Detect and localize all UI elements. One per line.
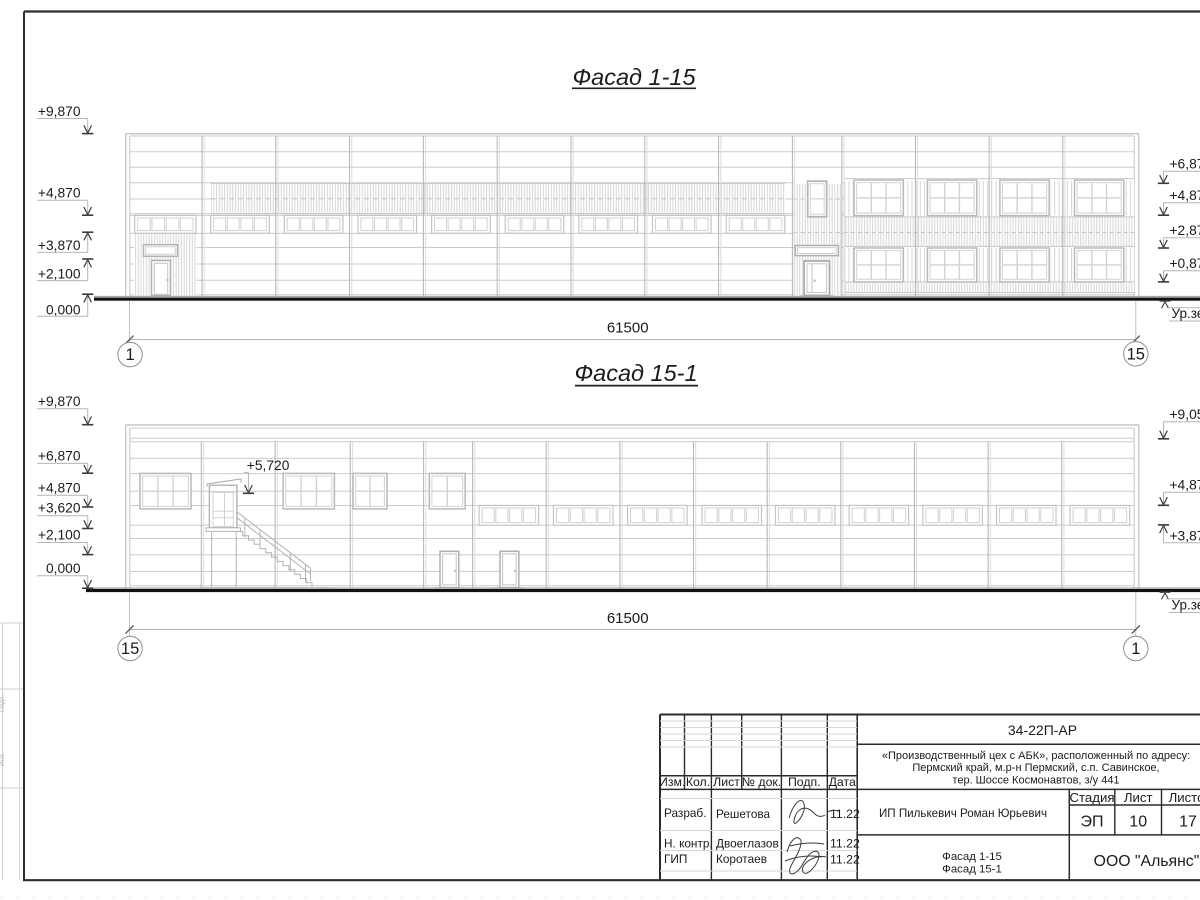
svg-text:тер. Шоссе Космонавтов, з/у 44: тер. Шоссе Космонавтов, з/у 441 — [952, 774, 1119, 786]
svg-text:Подп.: Подп. — [788, 775, 821, 789]
svg-text:Лист: Лист — [1124, 790, 1153, 805]
svg-text:Лист: Лист — [713, 775, 740, 789]
svg-text:№ док.: № док. — [742, 775, 781, 789]
svg-text:+6,870: +6,870 — [38, 448, 81, 463]
svg-text:1: 1 — [1131, 640, 1140, 658]
svg-text:+9,870: +9,870 — [38, 394, 81, 409]
svg-text:Фасад 1-15: Фасад 1-15 — [942, 851, 1002, 863]
svg-text:Фасад 15-1: Фасад 15-1 — [942, 864, 1002, 876]
svg-text:+4,87: +4,87 — [1170, 188, 1200, 203]
svg-text:10: 10 — [1129, 814, 1147, 831]
svg-text:+3,87: +3,87 — [1170, 529, 1200, 544]
svg-text:Разраб.: Разраб. — [664, 806, 706, 820]
svg-text:ГИП: ГИП — [664, 852, 687, 866]
svg-text:15: 15 — [121, 640, 139, 658]
svg-text:Ур.зе: Ур.зе — [1172, 306, 1200, 321]
svg-text:15: 15 — [1127, 345, 1145, 363]
svg-text:+2,100: +2,100 — [38, 267, 81, 282]
svg-text:+2,87: +2,87 — [1170, 223, 1200, 238]
svg-text:+4,87: +4,87 — [1170, 478, 1200, 493]
svg-text:61500: 61500 — [607, 610, 649, 627]
svg-text:Пермский край, м.р-н Пермский,: Пермский край, м.р-н Пермский, с.п. Сави… — [912, 762, 1159, 774]
svg-text:ИП Пилькевич Роман Юрьевич: ИП Пилькевич Роман Юрьевич — [879, 807, 1047, 820]
svg-text:Фасад 1-15: Фасад 1-15 — [572, 64, 696, 90]
svg-text:0,000: 0,000 — [46, 303, 81, 318]
svg-text:+9,870: +9,870 — [38, 104, 81, 119]
svg-text:17: 17 — [1179, 814, 1197, 831]
svg-text:+2,100: +2,100 — [38, 528, 81, 543]
svg-text:Фасад 15-1: Фасад 15-1 — [574, 360, 697, 386]
svg-text:Двоеглазов: Двоеглазов — [716, 837, 779, 851]
svg-text:Подп.: Подп. — [0, 695, 6, 712]
svg-text:+9,05: +9,05 — [1170, 407, 1200, 422]
svg-text:+4,870: +4,870 — [38, 185, 81, 200]
svg-text:Коротаев: Коротаев — [716, 852, 767, 866]
svg-text:+3,870: +3,870 — [38, 238, 81, 253]
svg-text:11.22: 11.22 — [830, 807, 860, 821]
svg-text:34-22П-АР: 34-22П-АР — [1008, 722, 1077, 738]
svg-text:11.22: 11.22 — [830, 837, 860, 851]
svg-text:Стадия: Стадия — [1070, 790, 1115, 805]
svg-text:Изм.: Изм. — [659, 775, 685, 789]
svg-text:0,000: 0,000 — [46, 561, 81, 576]
svg-text:+6,87: +6,87 — [1170, 157, 1200, 172]
svg-text:Листов: Листов — [1169, 790, 1200, 805]
svg-text:Кол.: Кол. — [686, 775, 710, 789]
svg-text:+4,870: +4,870 — [38, 480, 81, 495]
svg-text:1: 1 — [126, 346, 135, 364]
svg-text:+3,620: +3,620 — [38, 501, 81, 516]
svg-text:11.22: 11.22 — [830, 853, 860, 867]
svg-text:Ур.зе: Ур.зе — [1172, 597, 1200, 612]
svg-text:Н. контр.: Н. контр. — [664, 837, 713, 851]
svg-text:+5,720: +5,720 — [247, 458, 290, 473]
svg-text:Дата: Дата — [829, 775, 856, 789]
svg-text:+0,87: +0,87 — [1170, 256, 1200, 271]
svg-text:Решетова: Решетова — [716, 807, 771, 821]
svg-text:ЭП: ЭП — [1081, 814, 1104, 831]
svg-text:Инв.: Инв. — [0, 752, 6, 766]
svg-text:«Производственный цех с АБК»,: «Производственный цех с АБК», расположен… — [882, 750, 1190, 762]
svg-text:61500: 61500 — [607, 320, 649, 337]
svg-text:ООО "Альянс": ООО "Альянс" — [1094, 853, 1200, 870]
